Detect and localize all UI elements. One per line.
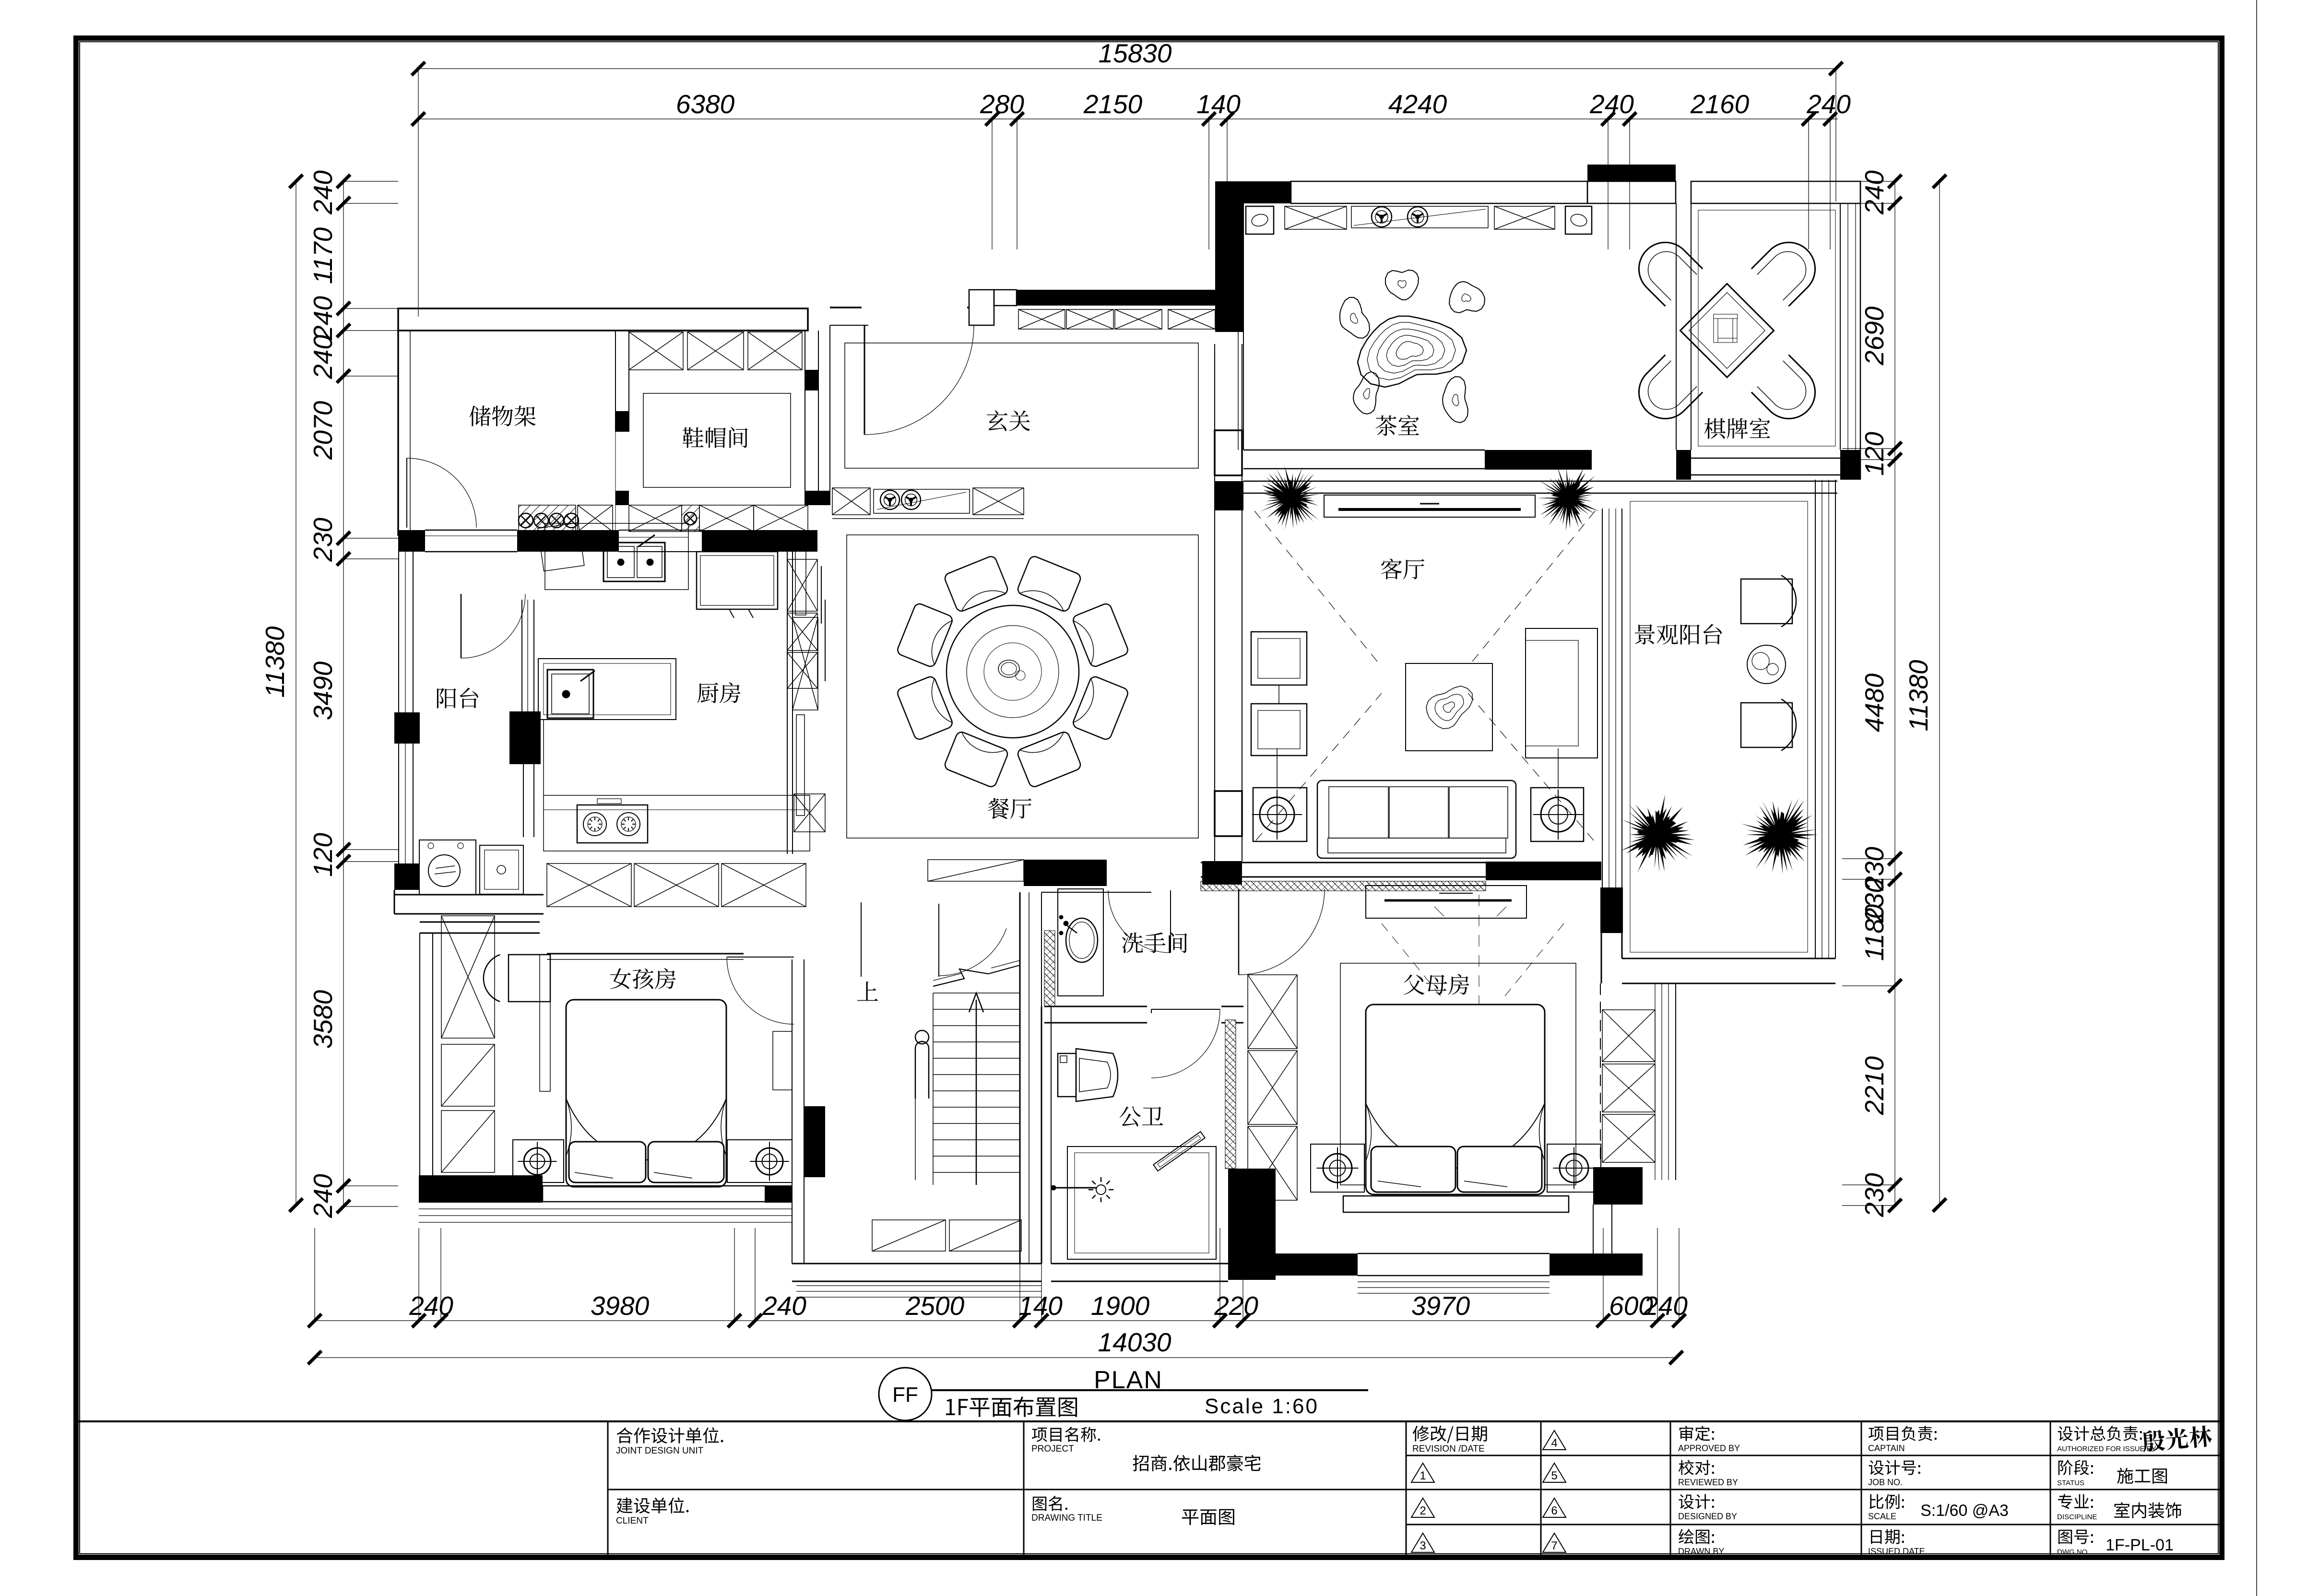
svg-text:3980: 3980	[591, 1291, 650, 1321]
svg-text:1900: 1900	[1091, 1291, 1150, 1321]
svg-text:3970: 3970	[1411, 1291, 1470, 1321]
svg-text:240: 240	[1806, 89, 1851, 119]
svg-text:JOINT DESIGN UNIT: JOINT DESIGN UNIT	[616, 1446, 704, 1456]
svg-text:Scale 1:60: Scale 1:60	[1205, 1395, 1319, 1418]
svg-text:15830: 15830	[1099, 38, 1172, 68]
svg-text:PROJECT: PROJECT	[1031, 1444, 1074, 1454]
svg-text:CAPTAIN: CAPTAIN	[1868, 1443, 1905, 1453]
svg-text:1170: 1170	[308, 227, 338, 284]
svg-text:6380: 6380	[676, 89, 735, 119]
svg-text:11380: 11380	[1904, 660, 1933, 731]
svg-text:240: 240	[308, 296, 338, 341]
svg-text:JOB NO.: JOB NO.	[1868, 1478, 1903, 1487]
svg-text:APPROVED BY: APPROVED BY	[1678, 1443, 1740, 1453]
svg-text:120: 120	[1859, 432, 1889, 476]
svg-text:2210: 2210	[1859, 1056, 1889, 1115]
svg-text:240: 240	[308, 335, 338, 379]
svg-text:240: 240	[1589, 89, 1634, 119]
svg-text:S:1/60 @A3: S:1/60 @A3	[1920, 1501, 2009, 1520]
svg-text:140: 140	[1018, 1291, 1063, 1321]
svg-text:240: 240	[1859, 170, 1889, 215]
svg-text:240: 240	[1643, 1291, 1688, 1321]
svg-text:240: 240	[409, 1291, 453, 1321]
svg-text:4: 4	[1551, 1437, 1557, 1450]
svg-text:2: 2	[1420, 1504, 1426, 1517]
svg-text:120: 120	[308, 833, 338, 877]
svg-text:220: 220	[1214, 1291, 1258, 1321]
svg-text:240: 240	[308, 1174, 338, 1218]
svg-text:3: 3	[1420, 1539, 1426, 1552]
svg-text:ISSUED DATE: ISSUED DATE	[1868, 1547, 1925, 1556]
svg-text:1180: 1180	[1859, 904, 1889, 961]
svg-text:240: 240	[308, 170, 338, 215]
svg-text:AUTHORIZED FOR ISSUE BY: AUTHORIZED FOR ISSUE BY	[2057, 1445, 2156, 1453]
svg-text:2690: 2690	[1859, 306, 1889, 366]
svg-text:14030: 14030	[1098, 1327, 1171, 1357]
svg-text:2070: 2070	[308, 401, 338, 460]
svg-text:DRAWING TITLE: DRAWING TITLE	[1031, 1513, 1102, 1523]
svg-text:11380: 11380	[260, 626, 290, 698]
svg-text:DESIGNED BY: DESIGNED BY	[1678, 1512, 1737, 1521]
svg-text:DRAWN BY: DRAWN BY	[1678, 1547, 1724, 1556]
svg-text:3580: 3580	[308, 990, 338, 1049]
svg-text:1F-PL-01: 1F-PL-01	[2106, 1536, 2174, 1554]
svg-text:2500: 2500	[905, 1291, 965, 1321]
svg-text:4480: 4480	[1859, 673, 1889, 732]
svg-text:230: 230	[1859, 1173, 1889, 1218]
svg-text:2160: 2160	[1690, 89, 1750, 119]
svg-text:230: 230	[308, 518, 338, 562]
svg-text:3490: 3490	[308, 661, 338, 720]
svg-text:1: 1	[1420, 1469, 1426, 1482]
svg-text:SCALE: SCALE	[1868, 1512, 1896, 1521]
svg-text:4240: 4240	[1388, 89, 1447, 119]
svg-text:2150: 2150	[1083, 89, 1143, 119]
svg-text:DISCIPLINE: DISCIPLINE	[2057, 1513, 2097, 1521]
svg-text:REVIEWED BY: REVIEWED BY	[1678, 1478, 1738, 1487]
svg-text:STATUS: STATUS	[2057, 1479, 2084, 1487]
svg-text:REVISION /DATE: REVISION /DATE	[1412, 1444, 1485, 1454]
svg-text:CLIENT: CLIENT	[616, 1516, 649, 1526]
svg-text:240: 240	[762, 1291, 806, 1321]
svg-text:DWG NO.: DWG NO.	[2057, 1548, 2090, 1556]
svg-text:280: 280	[980, 89, 1024, 119]
svg-text:7: 7	[1551, 1539, 1557, 1552]
svg-text:FF: FF	[892, 1383, 918, 1407]
svg-text:5: 5	[1551, 1469, 1557, 1482]
svg-text:140: 140	[1196, 89, 1241, 119]
svg-text:6: 6	[1551, 1504, 1557, 1517]
